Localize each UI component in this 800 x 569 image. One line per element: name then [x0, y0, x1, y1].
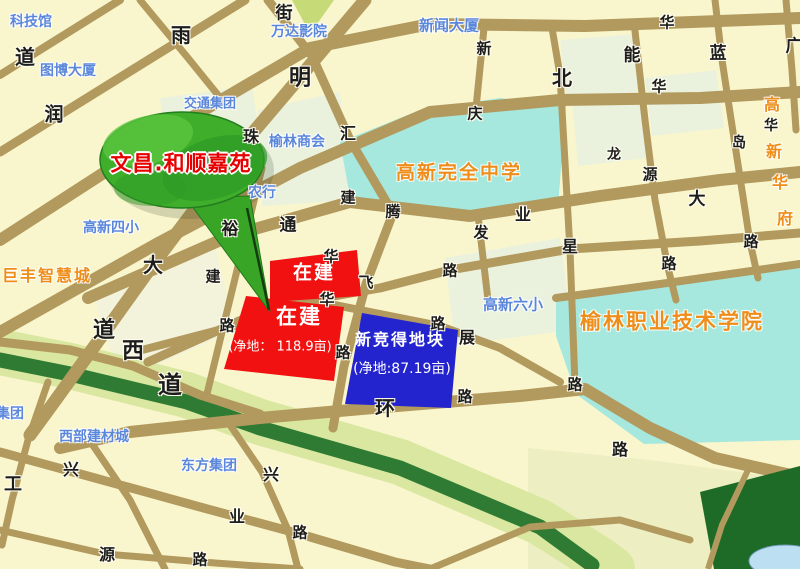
road-label: 展	[459, 330, 475, 346]
road-label: 华	[659, 16, 674, 31]
road-label: 龙	[607, 148, 621, 162]
road-label: 业	[515, 207, 531, 223]
road-label: 汇	[340, 126, 356, 142]
road-label: 飞	[358, 276, 373, 291]
road-label: 道	[15, 47, 35, 67]
poi-gaoxinhuafu-char: 华	[772, 175, 790, 191]
poi-western-building-materials: 西部建材城	[59, 430, 129, 444]
map-canvas[interactable]: 道雨街明润珠汇新庆北华能蓝广华华岛龙源大路路裕通建腾业发星路建大华飞华路道西道路…	[0, 0, 800, 569]
poi-yulin-vocational-college: 榆林职业技术学院	[580, 312, 764, 333]
road-label: 业	[229, 509, 245, 525]
poi-gaoxin-no6-primary: 高新六小	[483, 298, 543, 313]
road-label: 润	[44, 106, 63, 125]
poi-news-building: 新闻大厦	[419, 19, 479, 34]
road-label: 大	[143, 255, 163, 275]
road-label: 岛	[732, 136, 746, 150]
road-label: 兴	[63, 462, 79, 478]
road-label: 源	[99, 547, 115, 563]
road-label: 环	[375, 398, 395, 418]
road-label: 珠	[243, 129, 259, 145]
road-label: 星	[562, 239, 578, 255]
road-label: 路	[457, 390, 472, 405]
road-label: 兴	[263, 467, 279, 483]
road-label: 路	[661, 257, 676, 272]
plot-south-area: (净地： 118.9亩)	[228, 341, 332, 354]
road-label: 道	[93, 320, 115, 342]
road-label: 建	[340, 191, 355, 206]
road-label: 大	[689, 192, 706, 209]
poi-dongfang-group: 东方集团	[181, 459, 237, 473]
poi-gaoxinhuafu-char: 新	[766, 144, 784, 160]
plot-new-label: 新竞得地块	[355, 332, 445, 348]
road-label: 新	[476, 42, 491, 57]
road-label: 庆	[467, 107, 482, 122]
poi-gaoxinhuafu-char: 府	[777, 211, 795, 227]
road-label: 能	[624, 48, 641, 65]
road-label: 道	[158, 373, 182, 397]
poi-agricultural-bank: 农行	[248, 186, 276, 200]
road-label: 华	[651, 80, 666, 95]
poi-gaoxin-high-school: 高新完全中学	[396, 164, 522, 183]
plot-new-area: (净地:87.19亩)	[353, 362, 451, 376]
road-label: 通	[280, 218, 297, 235]
road-label: 路	[612, 442, 628, 458]
road-label: 源	[642, 168, 657, 183]
road-label: 广	[786, 39, 800, 56]
road-label: 路	[442, 264, 457, 279]
road-label: 路	[292, 526, 307, 541]
road-label: 工	[4, 476, 22, 494]
plot-south-label: 在建	[276, 307, 322, 328]
poi-yulin-chamber: 榆林商会	[269, 135, 325, 149]
plot-north-label: 在建	[293, 264, 335, 283]
road-label: 华	[764, 119, 778, 133]
road-label: 路	[192, 553, 207, 568]
callout-label: 文昌.和顺嘉苑	[111, 154, 252, 175]
road-label: 蓝	[710, 46, 727, 63]
poi-transport-group: 交通集团	[184, 98, 236, 111]
road-label: 建	[205, 270, 220, 285]
poi-gaoxinhuafu-char: 高	[764, 97, 782, 113]
poi-science-museum: 科技馆	[10, 15, 52, 29]
road-label: 路	[743, 235, 758, 250]
poi-wanda-cinema: 万达影院	[271, 25, 327, 39]
road-label: 街	[276, 6, 293, 23]
road-label: 路	[567, 378, 582, 393]
road-label: 裕	[222, 222, 239, 239]
poi-tubo-building: 图博大厦	[40, 64, 96, 78]
road-label: 路	[335, 346, 350, 361]
poi-group-partial: 集团	[0, 407, 24, 421]
road-label: 西	[122, 341, 144, 363]
poi-gaoxin-no4-primary: 高新四小	[83, 221, 139, 235]
road-label: 北	[552, 68, 572, 88]
road-label: 明	[289, 68, 311, 90]
poi-jufeng-smart-city: 巨丰智慧城	[2, 268, 92, 284]
road-label: 发	[473, 226, 488, 241]
road-label: 路	[219, 319, 234, 334]
road-label: 雨	[171, 25, 191, 45]
labels-layer: 道雨街明润珠汇新庆北华能蓝广华华岛龙源大路路裕通建腾业发星路建大华飞华路道西道路…	[0, 0, 800, 569]
road-label: 腾	[385, 205, 400, 220]
